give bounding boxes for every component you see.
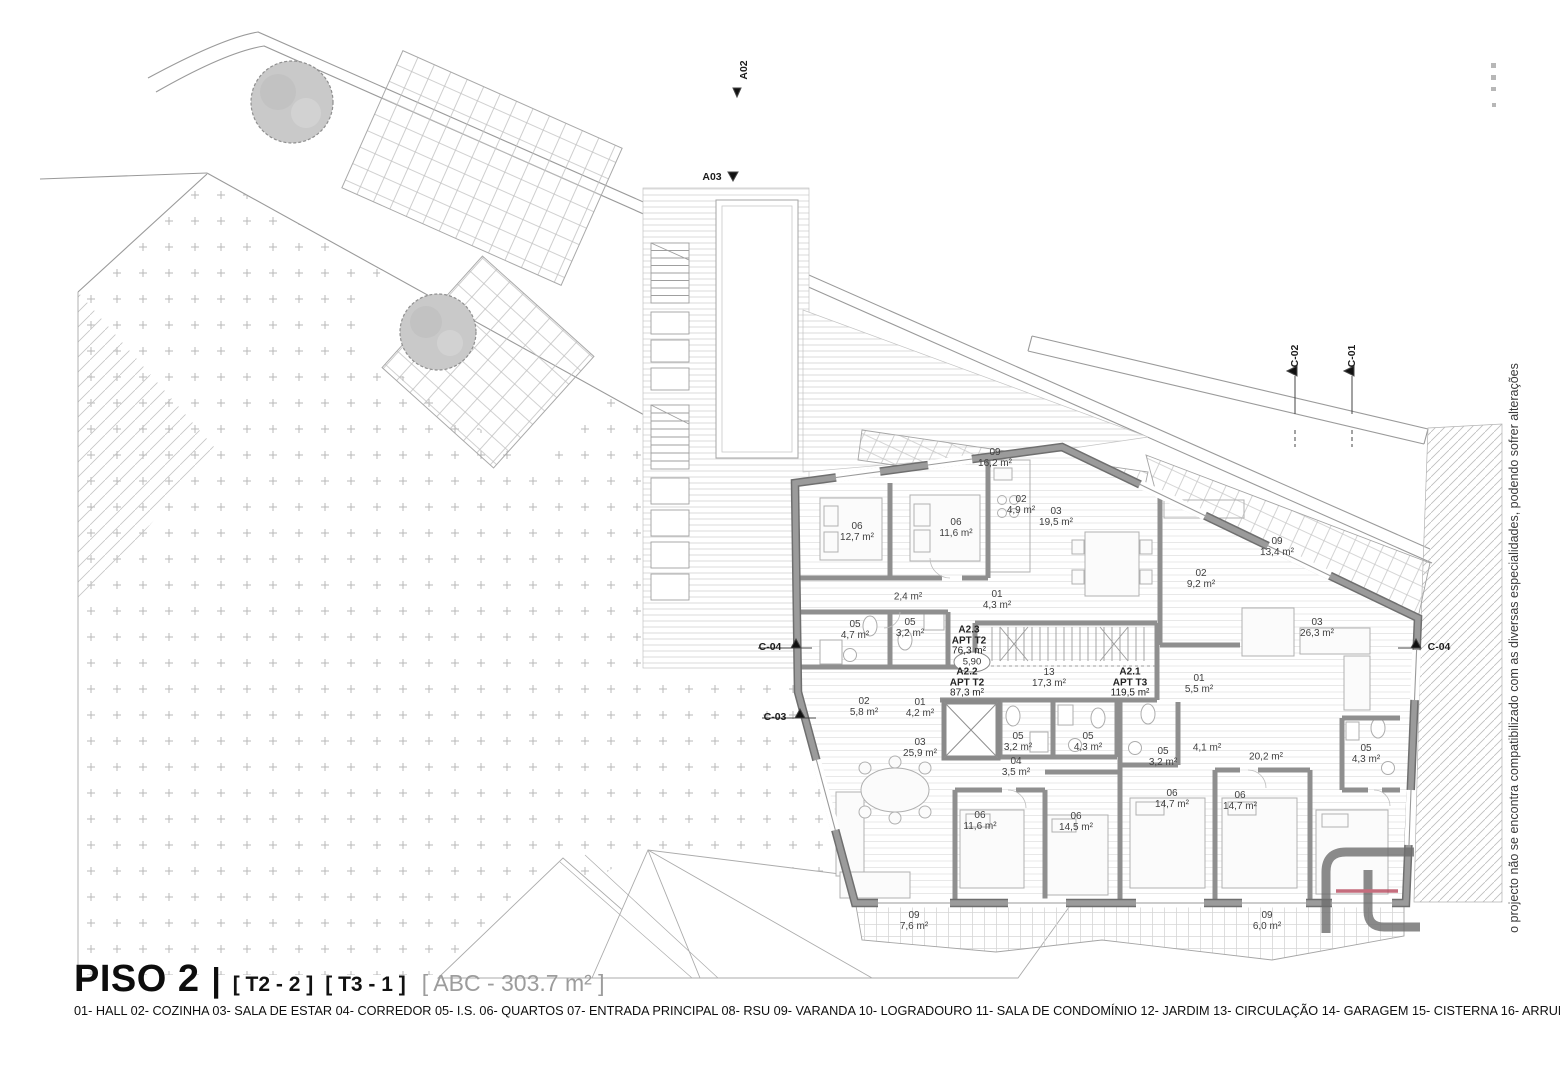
right-hatch-area — [1414, 424, 1502, 902]
level-mark-ellipse — [954, 652, 990, 672]
elevator-shaft — [944, 702, 998, 758]
floor-plan-sheet: { "document": { "floor_title": "PISO 2",… — [0, 0, 1560, 1080]
tree-2 — [400, 294, 476, 370]
drawing-area: 5,90 0916,2 m²0612,7 m²0611,6 m²024,9 m²… — [0, 0, 1560, 1080]
typology-t2: [ T2 - 2 ] — [233, 973, 314, 997]
title-separator: | — [212, 961, 221, 999]
tree-1 — [251, 61, 333, 143]
pergola-grid-1 — [342, 51, 622, 286]
title-block: PISO 2 | [ T2 - 2 ] [ T3 - 1 ] [ ABC - 3… — [74, 958, 1494, 1018]
site-plan-drawing — [0, 0, 1560, 1080]
room-legend: 01- HALL 02- COZINHA 03- SALA DE ESTAR 0… — [74, 1004, 1494, 1018]
gross-area: [ ABC - 303.7 m² ] — [422, 970, 605, 997]
title-row: PISO 2 | [ T2 - 2 ] [ T3 - 1 ] [ ABC - 3… — [74, 958, 1494, 1001]
corner-marks — [1491, 63, 1496, 107]
floor-title: PISO 2 — [74, 958, 200, 1001]
side-note: o projecto não se encontra compatibiliza… — [1507, 363, 1521, 933]
typology-t3: [ T3 - 1 ] — [325, 973, 406, 997]
